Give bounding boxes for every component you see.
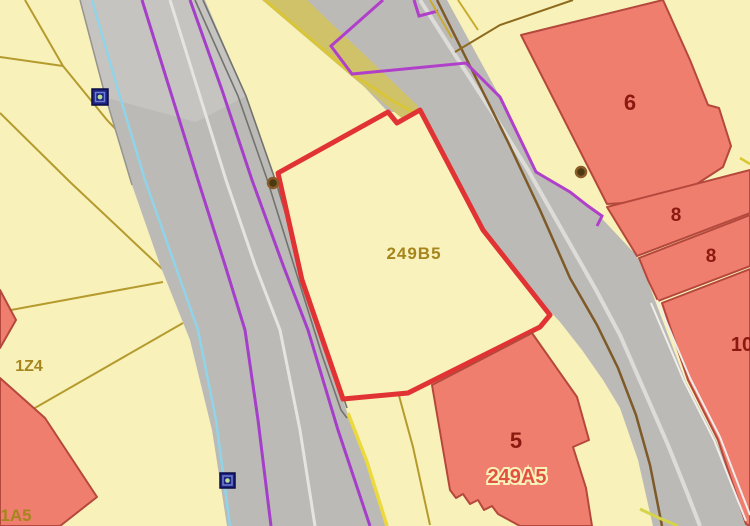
building-6-label: 6 bbox=[624, 90, 636, 115]
survey-point-icon-2[interactable] bbox=[576, 167, 586, 177]
parcel-249B5-label: 249B5 bbox=[386, 244, 441, 263]
parcel-249A5-label: 249A5 bbox=[488, 466, 547, 488]
building-8b-label: 8 bbox=[706, 246, 717, 267]
utility-node-icon-2[interactable] bbox=[220, 473, 235, 488]
survey-point-icon-1[interactable] bbox=[268, 178, 278, 188]
building-10-label: 10 bbox=[731, 334, 750, 356]
parcel-1Z4-label: 1Z4 bbox=[15, 358, 43, 375]
map-viewport[interactable]: 249B5 6 8 8 10 5 249A5 1Z4 1A5 bbox=[0, 0, 750, 526]
parcel-1A5-label: 1A5 bbox=[0, 506, 31, 525]
building-5-label: 5 bbox=[510, 428, 522, 453]
building-8a-label: 8 bbox=[671, 205, 682, 226]
cadastral-map: 249B5 6 8 8 10 5 249A5 1Z4 1A5 bbox=[0, 0, 750, 526]
utility-node-icon-1[interactable] bbox=[92, 89, 108, 105]
